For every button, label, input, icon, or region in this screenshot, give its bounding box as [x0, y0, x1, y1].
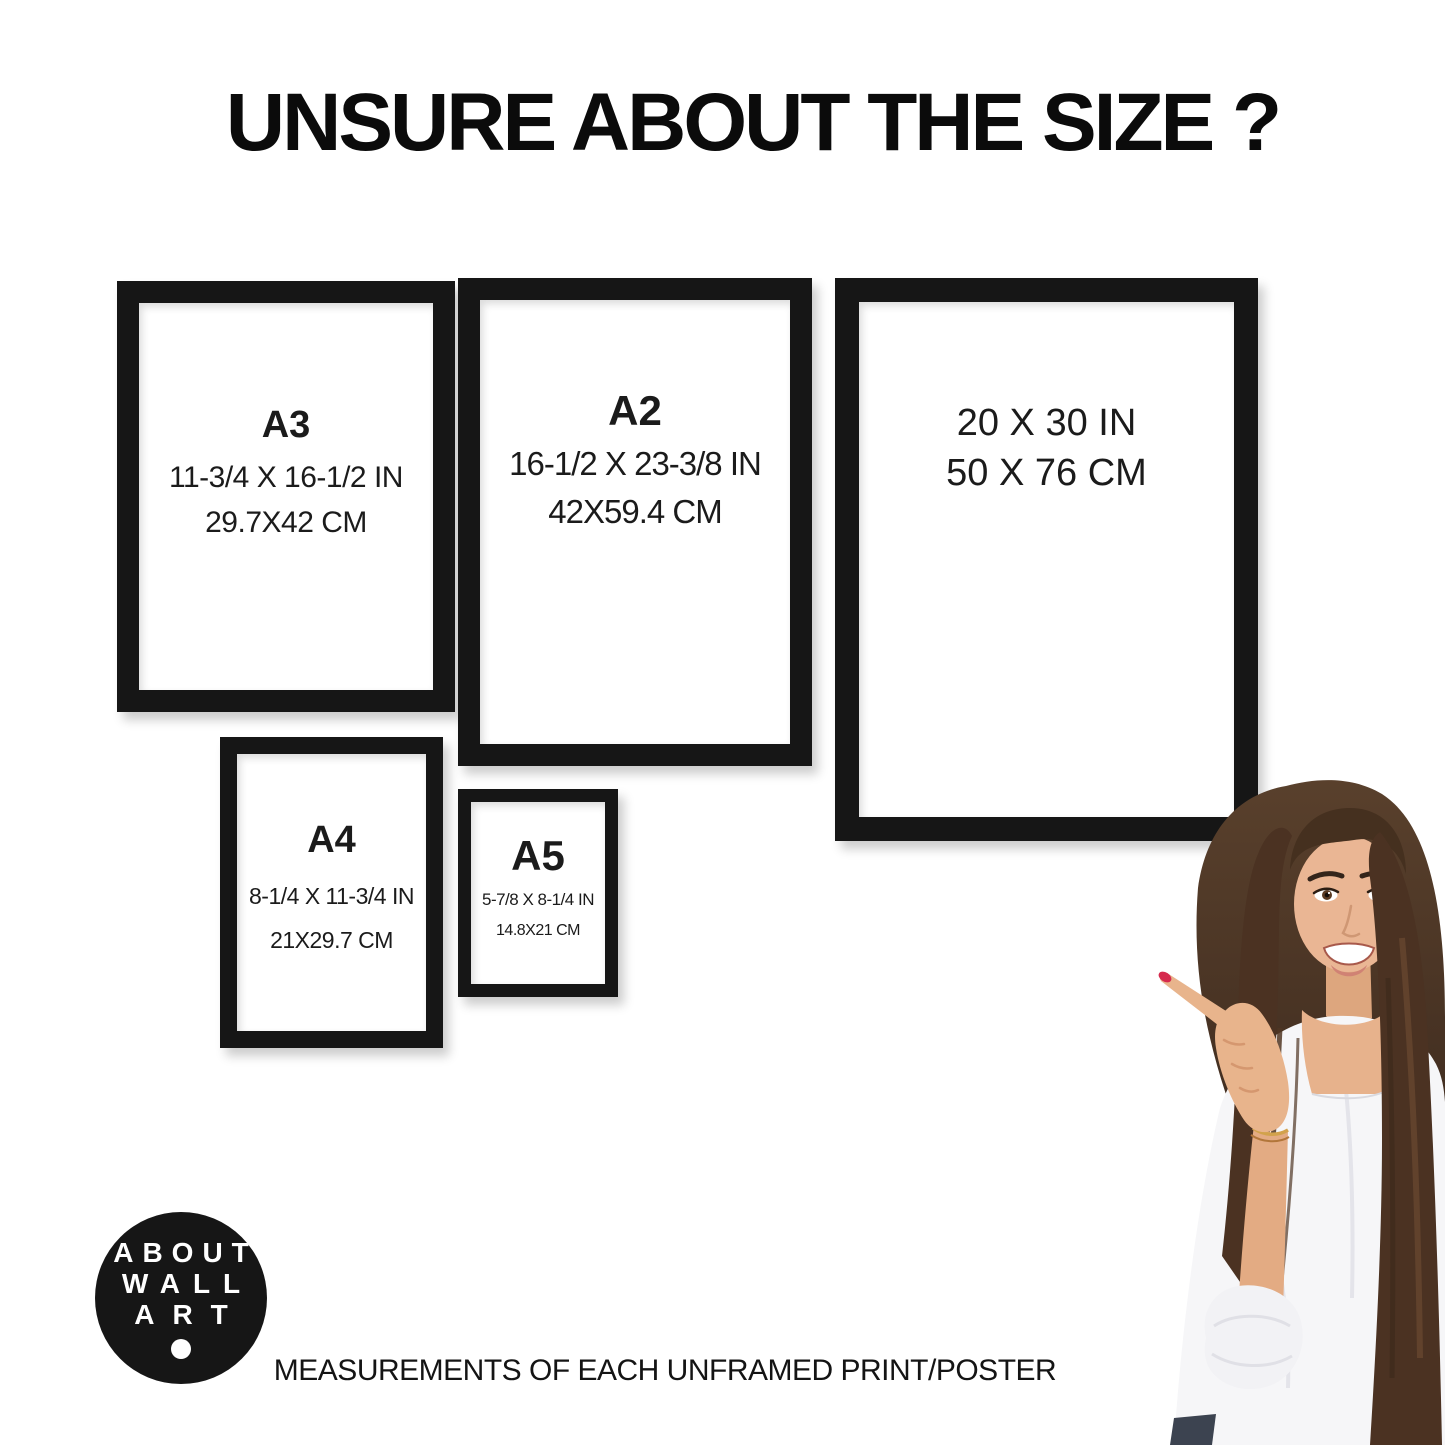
frame-20x30: 20 X 30 IN 50 X 76 CM: [835, 278, 1258, 841]
footer-note: MEASUREMENTS OF EACH UNFRAMED PRINT/POST…: [170, 1354, 1160, 1388]
frame-a5: A5 5-7/8 X 8-1/4 IN 14.8X21 CM: [458, 789, 618, 997]
frame-a5-cm: 14.8X21 CM: [496, 916, 580, 946]
frame-20x30-inches: 20 X 30 IN: [957, 398, 1137, 448]
logo-line-about: ABOUT: [104, 1237, 258, 1268]
frame-a2-inches: 16-1/2 X 23-3/8 IN: [509, 440, 761, 488]
logo-line-art: ART: [116, 1299, 246, 1330]
logo-line-wall: WALL: [109, 1268, 253, 1299]
frame-a4-inches: 8-1/4 X 11-3/4 IN: [249, 874, 414, 919]
frame-20x30-cm: 50 X 76 CM: [946, 448, 1147, 498]
frame-a5-inches: 5-7/8 X 8-1/4 IN: [482, 884, 594, 915]
jeans: [1170, 1414, 1216, 1445]
frame-a3-size-label: A3: [262, 403, 311, 449]
frame-a2-size-label: A2: [608, 386, 662, 436]
frame-a3-cm: 29.7X42 CM: [205, 500, 367, 545]
sleeve-cuff: [1205, 1285, 1303, 1389]
frame-a2-cm: 42X59.4 CM: [548, 488, 721, 536]
size-guide-image: UNSURE ABOUT THE SIZE ? A3 11-3/4 X 16-1…: [0, 0, 1445, 1445]
frame-a4: A4 8-1/4 X 11-3/4 IN 21X29.7 CM: [220, 737, 443, 1048]
frame-a2: A2 16-1/2 X 23-3/8 IN 42X59.4 CM: [458, 278, 812, 766]
frame-a5-size-label: A5: [511, 832, 565, 880]
frame-a4-cm: 21X29.7 CM: [270, 918, 393, 963]
frame-a4-size-label: A4: [307, 818, 356, 864]
frame-a3: A3 11-3/4 X 16-1/2 IN 29.7X42 CM: [117, 281, 455, 712]
woman-pointing-illustration: [1140, 778, 1445, 1445]
page-title: UNSURE ABOUT THE SIZE ?: [60, 76, 1445, 170]
frame-a3-inches: 11-3/4 X 16-1/2 IN: [169, 455, 403, 500]
